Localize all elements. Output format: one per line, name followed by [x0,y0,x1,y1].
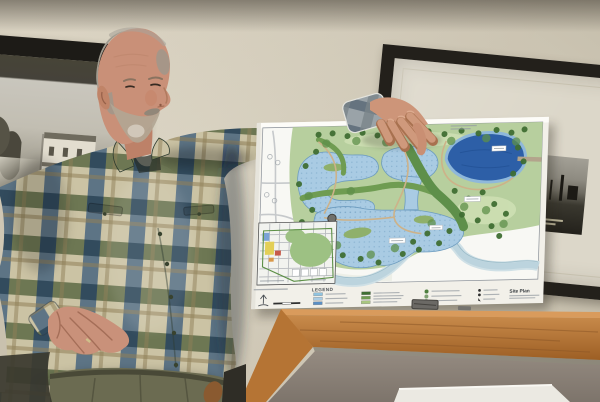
binder-clip [412,300,438,310]
podium-left-gap-shadow [222,364,246,402]
photograph-scene: LEGEND [0,0,600,402]
clip-tab [458,306,471,310]
podium [0,0,600,402]
